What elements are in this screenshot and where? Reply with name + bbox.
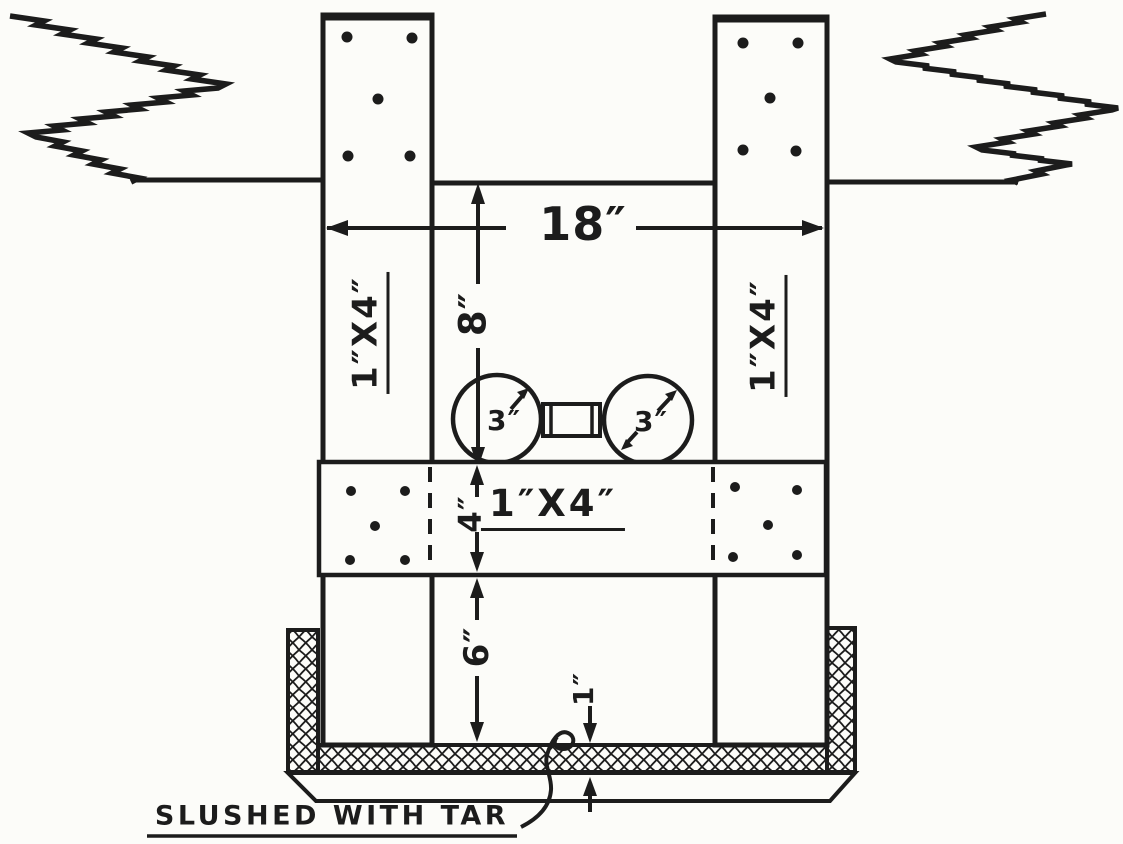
dimension-label-4in: 4″ — [456, 495, 487, 532]
dimension-label-18in: 18″ — [539, 201, 627, 247]
drawing-canvas — [0, 0, 1123, 844]
technical-drawing-figure: 18″ 8″ 1″X4″ 1″X4″ 3″ 3″ 1″X4″ 4″ 6″ 1″ … — [0, 0, 1123, 844]
dimension-label-1in: 1″ — [570, 672, 598, 706]
dimension-label-8in: 8″ — [455, 292, 492, 336]
break-zigzag-right — [890, 14, 1118, 183]
tarred-bottom-layer — [318, 745, 827, 772]
slushed-with-tar-caption: SLUSHED WITH TAR — [155, 803, 509, 830]
ground-line — [133, 180, 1018, 183]
cross-board-size-label: 1″X4″ — [481, 485, 625, 531]
left-post-size-label: 1″X4″ — [349, 272, 390, 394]
trough-base-board — [288, 773, 855, 801]
left-pipe-diameter-label: 3″ — [487, 407, 521, 435]
pipe-coupling — [543, 404, 600, 436]
trough-left-wall — [288, 630, 318, 772]
right-pipe-diameter-label: 3″ — [634, 408, 668, 436]
dimension-label-6in: 6″ — [460, 627, 494, 668]
break-zigzag-left — [10, 16, 226, 182]
trough-right-wall — [827, 628, 855, 772]
right-post-size-label: 1″X4″ — [747, 275, 788, 397]
